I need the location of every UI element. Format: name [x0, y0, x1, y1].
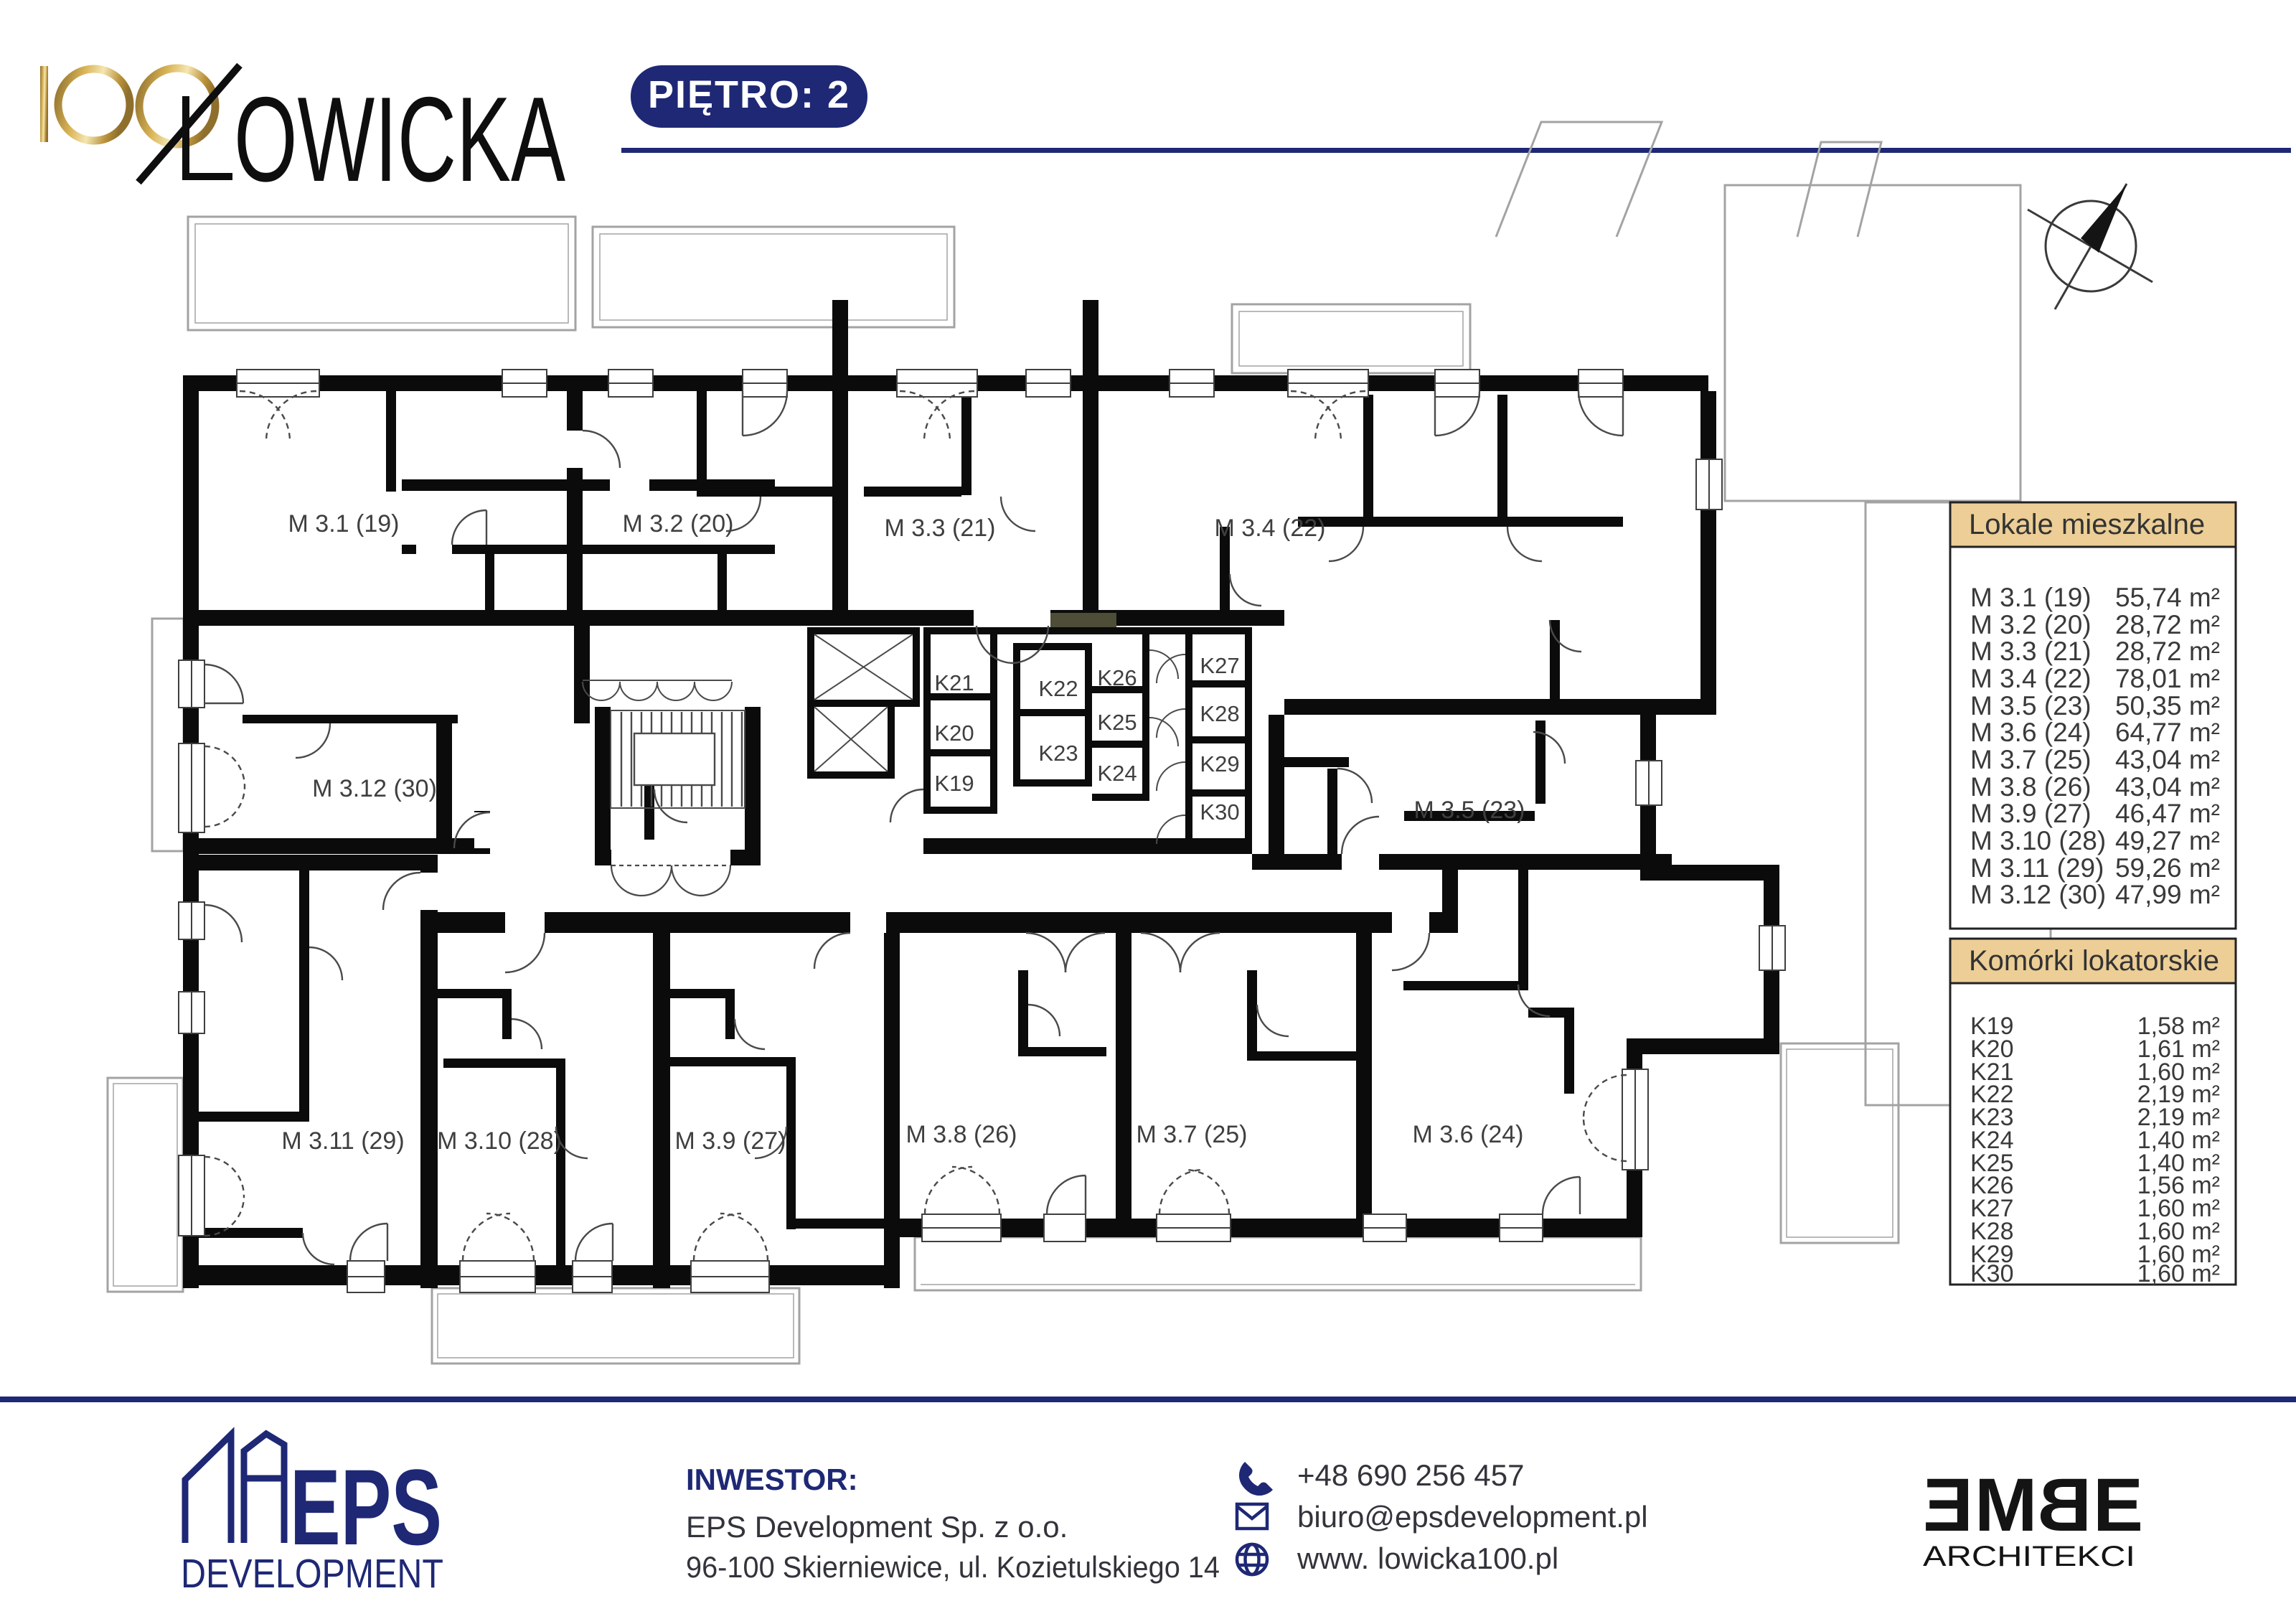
svg-text:59,26 m²: 59,26 m² — [2115, 853, 2220, 883]
svg-text:M 3.6 (24): M 3.6 (24) — [1413, 1121, 1524, 1148]
svg-text:K21: K21 — [934, 670, 974, 695]
svg-text:50,35 m²: 50,35 m² — [2115, 691, 2220, 721]
svg-text:M 3.3 (21): M 3.3 (21) — [885, 515, 996, 542]
svg-text:M 3.4 (22): M 3.4 (22) — [1215, 515, 1326, 542]
svg-text:M 3.9 (27): M 3.9 (27) — [1970, 799, 2092, 828]
svg-text:+48 690 256 457: +48 690 256 457 — [1297, 1458, 1524, 1492]
svg-text:M 3.1 (19): M 3.1 (19) — [288, 510, 400, 538]
svg-text:M 3.5 (23): M 3.5 (23) — [1414, 797, 1525, 824]
svg-text:M 3.2 (20): M 3.2 (20) — [623, 510, 734, 538]
svg-text:Lokale mieszkalne: Lokale mieszkalne — [1969, 509, 2205, 540]
svg-text:28,72 m²: 28,72 m² — [2115, 610, 2220, 639]
svg-text:K28: K28 — [1200, 701, 1239, 726]
svg-text:M 3.2 (20): M 3.2 (20) — [1970, 610, 2092, 639]
svg-text:28,72 m²: 28,72 m² — [2115, 637, 2220, 666]
svg-text:Komórki lokatorskie: Komórki lokatorskie — [1969, 945, 2219, 977]
svg-text:55,74 m²: 55,74 m² — [2115, 583, 2220, 612]
svg-text:K22: K22 — [1038, 676, 1078, 701]
svg-text:OWICKA: OWICKA — [234, 72, 565, 207]
svg-text:64,77 m²: 64,77 m² — [2115, 718, 2220, 747]
svg-text:www. lowicka100.pl: www. lowicka100.pl — [1297, 1541, 1558, 1575]
svg-text:46,47 m²: 46,47 m² — [2115, 799, 2220, 828]
svg-text:M 3.8 (26): M 3.8 (26) — [1970, 772, 2092, 802]
svg-text:M 3.10 (28): M 3.10 (28) — [437, 1127, 562, 1155]
svg-text:1,60 m²: 1,60 m² — [2137, 1260, 2220, 1287]
svg-text:43,04 m²: 43,04 m² — [2115, 745, 2220, 774]
svg-text:K24: K24 — [1097, 761, 1137, 786]
svg-text:M 3.11 (29): M 3.11 (29) — [1970, 853, 2104, 883]
svg-text:E: E — [1923, 1463, 1973, 1547]
svg-text:K30: K30 — [1970, 1260, 2014, 1287]
svg-text:K30: K30 — [1200, 799, 1239, 825]
svg-text:PIĘTRO: 2: PIĘTRO: 2 — [648, 73, 850, 116]
svg-text:K26: K26 — [1097, 665, 1137, 690]
svg-text:K23: K23 — [1038, 741, 1078, 766]
svg-text:EPS Development Sp. z o.o.: EPS Development Sp. z o.o. — [686, 1510, 1068, 1544]
svg-text:M 3.3 (21): M 3.3 (21) — [1970, 637, 2092, 666]
svg-text:K25: K25 — [1097, 710, 1137, 735]
svg-text:M 3.12 (30): M 3.12 (30) — [1970, 880, 2106, 909]
svg-text:biuro@epsdevelopment.pl: biuro@epsdevelopment.pl — [1297, 1500, 1648, 1534]
svg-text:K19: K19 — [934, 771, 974, 796]
svg-text:M 3.10 (28): M 3.10 (28) — [1970, 826, 2106, 855]
svg-text:78,01 m²: 78,01 m² — [2115, 664, 2220, 693]
svg-text:43,04 m²: 43,04 m² — [2115, 772, 2220, 802]
svg-text:DEVELOPMENT: DEVELOPMENT — [181, 1551, 443, 1597]
svg-text:ARCHITEKCI: ARCHITEKCI — [1923, 1541, 2135, 1572]
svg-text:K20: K20 — [934, 721, 974, 746]
svg-text:M 3.8 (26): M 3.8 (26) — [906, 1121, 1017, 1148]
svg-text:96-100 Skierniewice, ul. Kozie: 96-100 Skierniewice, ul. Kozietulskiego … — [686, 1550, 1220, 1584]
svg-text:M 3.5 (23): M 3.5 (23) — [1970, 691, 2092, 721]
svg-text:M 3.7 (25): M 3.7 (25) — [1970, 745, 2092, 774]
svg-text:B: B — [2037, 1463, 2092, 1547]
svg-text:M 3.6 (24): M 3.6 (24) — [1970, 718, 2092, 747]
svg-text:M: M — [1975, 1463, 2037, 1547]
svg-text:M 3.12 (30): M 3.12 (30) — [312, 775, 437, 802]
svg-text:E: E — [2093, 1463, 2143, 1547]
svg-text:M 3.7 (25): M 3.7 (25) — [1137, 1121, 1248, 1148]
svg-text:47,99 m²: 47,99 m² — [2115, 880, 2220, 909]
svg-text:INWESTOR:: INWESTOR: — [686, 1463, 858, 1496]
svg-text:K29: K29 — [1200, 751, 1239, 776]
svg-text:M 3.4 (22): M 3.4 (22) — [1970, 664, 2092, 693]
svg-text:EPS: EPS — [290, 1447, 442, 1567]
svg-text:M 3.11 (29): M 3.11 (29) — [281, 1127, 404, 1155]
svg-text:M 3.1 (19): M 3.1 (19) — [1970, 583, 2092, 612]
svg-text:K27: K27 — [1200, 653, 1239, 678]
svg-text:49,27 m²: 49,27 m² — [2115, 826, 2220, 855]
svg-text:M 3.9 (27): M 3.9 (27) — [675, 1127, 786, 1155]
